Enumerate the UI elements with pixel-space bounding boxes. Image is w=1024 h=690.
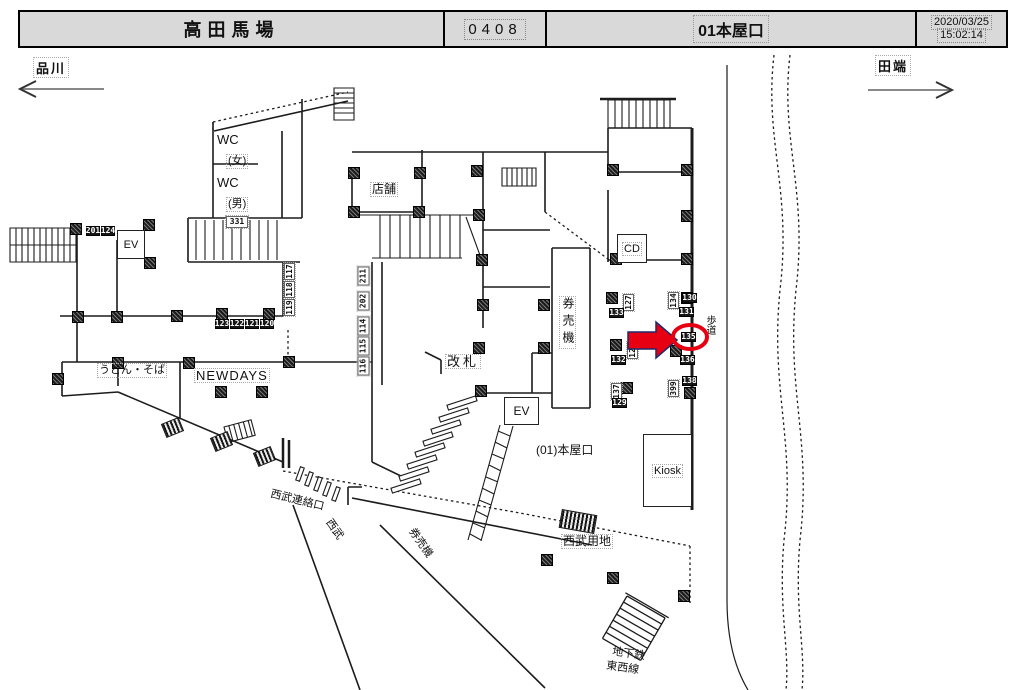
wc-men-sub: (男): [227, 198, 247, 211]
date-text: 2020/03/25: [932, 16, 991, 29]
camera-tag-135[interactable]: 135: [681, 332, 696, 342]
camera-tag-202[interactable]: 202: [357, 291, 369, 310]
stairs-northeast: [608, 100, 670, 128]
kiosk-box: Kiosk: [643, 434, 692, 507]
equipment-marker: [681, 253, 693, 265]
elevator-west-box: EV: [117, 230, 145, 259]
kiosk-label: Kiosk: [653, 465, 682, 477]
equipment-marker: [144, 257, 156, 269]
camera-tag-138[interactable]: 138: [682, 376, 697, 386]
camera-tag-211[interactable]: 211: [357, 266, 369, 285]
station-name: 高田馬場: [20, 12, 443, 46]
equipment-marker: [414, 167, 426, 179]
wc-women-sub: (女): [227, 155, 247, 168]
camera-tag-130[interactable]: 130: [682, 293, 697, 303]
floor-plan: [0, 0, 1024, 690]
track-line-2: [788, 55, 803, 690]
equipment-marker: [607, 164, 619, 176]
equipment-marker: [183, 357, 195, 369]
equipment-marker: [538, 342, 550, 354]
equipment-marker: [477, 299, 489, 311]
camera-tag-131[interactable]: 131: [679, 307, 694, 317]
equipment-marker: [283, 356, 295, 368]
track-line-1: [772, 55, 787, 690]
seibu-property-label: 西武用地: [562, 535, 612, 548]
equipment-marker: [607, 572, 619, 584]
station-map-screen: 高田馬場 0408 01本屋口 2020/03/25 15:02:14 品川 田…: [0, 0, 1024, 690]
direction-shinagawa: 品川: [34, 58, 68, 77]
equipment-marker: [678, 590, 690, 602]
ticket-gate-label: 改札: [446, 355, 480, 368]
camera-tag-132[interactable]: 132: [611, 355, 626, 365]
equipment-marker: [681, 164, 693, 176]
equipment-marker: [475, 385, 487, 397]
equipment-marker: [52, 373, 64, 385]
equipment-marker: [606, 292, 618, 304]
direction-arrows: [20, 81, 952, 98]
camera-tag-128[interactable]: 128: [627, 342, 638, 359]
equipment-marker: [684, 387, 696, 399]
walls: [60, 65, 748, 690]
camera-tag-120[interactable]: 120: [260, 319, 274, 329]
equipment-marker: [538, 299, 550, 311]
camera-tag-201[interactable]: 201: [86, 226, 100, 236]
walkway-stairs: [391, 396, 477, 493]
newdays-label: NEWDAYS: [195, 369, 269, 382]
stairs-west: [10, 228, 76, 262]
camera-tag-115[interactable]: 115: [357, 336, 369, 355]
header-bar: 高田馬場 0408 01本屋口 2020/03/25 15:02:14: [18, 10, 1008, 48]
datetime: 2020/03/25 15:02:14: [915, 12, 1006, 46]
wc-women-label: WC: [217, 133, 239, 146]
exit-name-label: (01)本屋口: [536, 444, 593, 457]
equipment-marker: [471, 165, 483, 177]
camera-tag-133[interactable]: 133: [609, 308, 624, 318]
site-boundary: [727, 65, 748, 690]
camera-tag-118[interactable]: 118: [284, 281, 295, 298]
camera-tag-117[interactable]: 117: [284, 263, 295, 280]
udon-soba-label: うどん・そば: [98, 364, 166, 377]
equipment-marker: [473, 209, 485, 221]
escalator-band: [468, 425, 513, 541]
sidewalk-label: 歩道: [703, 315, 716, 335]
camera-tag-114[interactable]: 114: [357, 316, 369, 335]
equipment-marker: [72, 311, 84, 323]
camera-tag-127[interactable]: 127: [623, 294, 634, 311]
equipment-marker: [348, 167, 360, 179]
equipment-marker: [256, 386, 268, 398]
camera-tag-119[interactable]: 119: [284, 299, 295, 316]
ticket-machines-label: 券売機: [560, 297, 575, 348]
camera-tag-116[interactable]: 116: [357, 356, 369, 375]
camera-tag-134[interactable]: 134: [668, 292, 679, 309]
equipment-marker: [541, 554, 553, 566]
cd-label: CD: [623, 243, 641, 255]
ev-west-label: EV: [124, 239, 139, 251]
stairs-shop: [352, 215, 481, 258]
equipment-marker: [476, 254, 488, 266]
equipment-marker: [473, 342, 485, 354]
camera-tag-122[interactable]: 122: [230, 319, 244, 329]
elevator-center-box: EV: [504, 397, 539, 425]
terminal-code: 0408: [443, 12, 545, 46]
time-text: 15:02:14: [938, 29, 985, 42]
direction-tabata: 田端: [876, 56, 910, 75]
equipment-marker: [610, 339, 622, 351]
equipment-marker: [70, 223, 82, 235]
wc-men-label: WC: [217, 176, 239, 189]
equipment-marker: [621, 382, 633, 394]
equipment-marker: [171, 310, 183, 322]
equipment-marker: [348, 206, 360, 218]
equipment-marker: [215, 386, 227, 398]
shop-label: 店舗: [371, 183, 397, 196]
equipment-marker: [681, 210, 693, 222]
camera-tag-121[interactable]: 121: [245, 319, 259, 329]
stairs-small-center: [502, 168, 536, 186]
camera-tag-124[interactable]: 124: [101, 226, 115, 236]
camera-tag-399[interactable]: 399: [668, 380, 679, 397]
ev-center-label: EV: [513, 404, 529, 418]
camera-tag-331[interactable]: 331: [226, 216, 248, 228]
equipment-marker: [413, 206, 425, 218]
camera-tag-129[interactable]: 129: [612, 398, 627, 408]
exit-name: 01本屋口: [545, 12, 915, 46]
cd-box: CD: [617, 234, 647, 263]
equipment-marker: [111, 311, 123, 323]
camera-tag-123[interactable]: 123: [215, 319, 229, 329]
camera-tag-136[interactable]: 136: [680, 355, 695, 365]
